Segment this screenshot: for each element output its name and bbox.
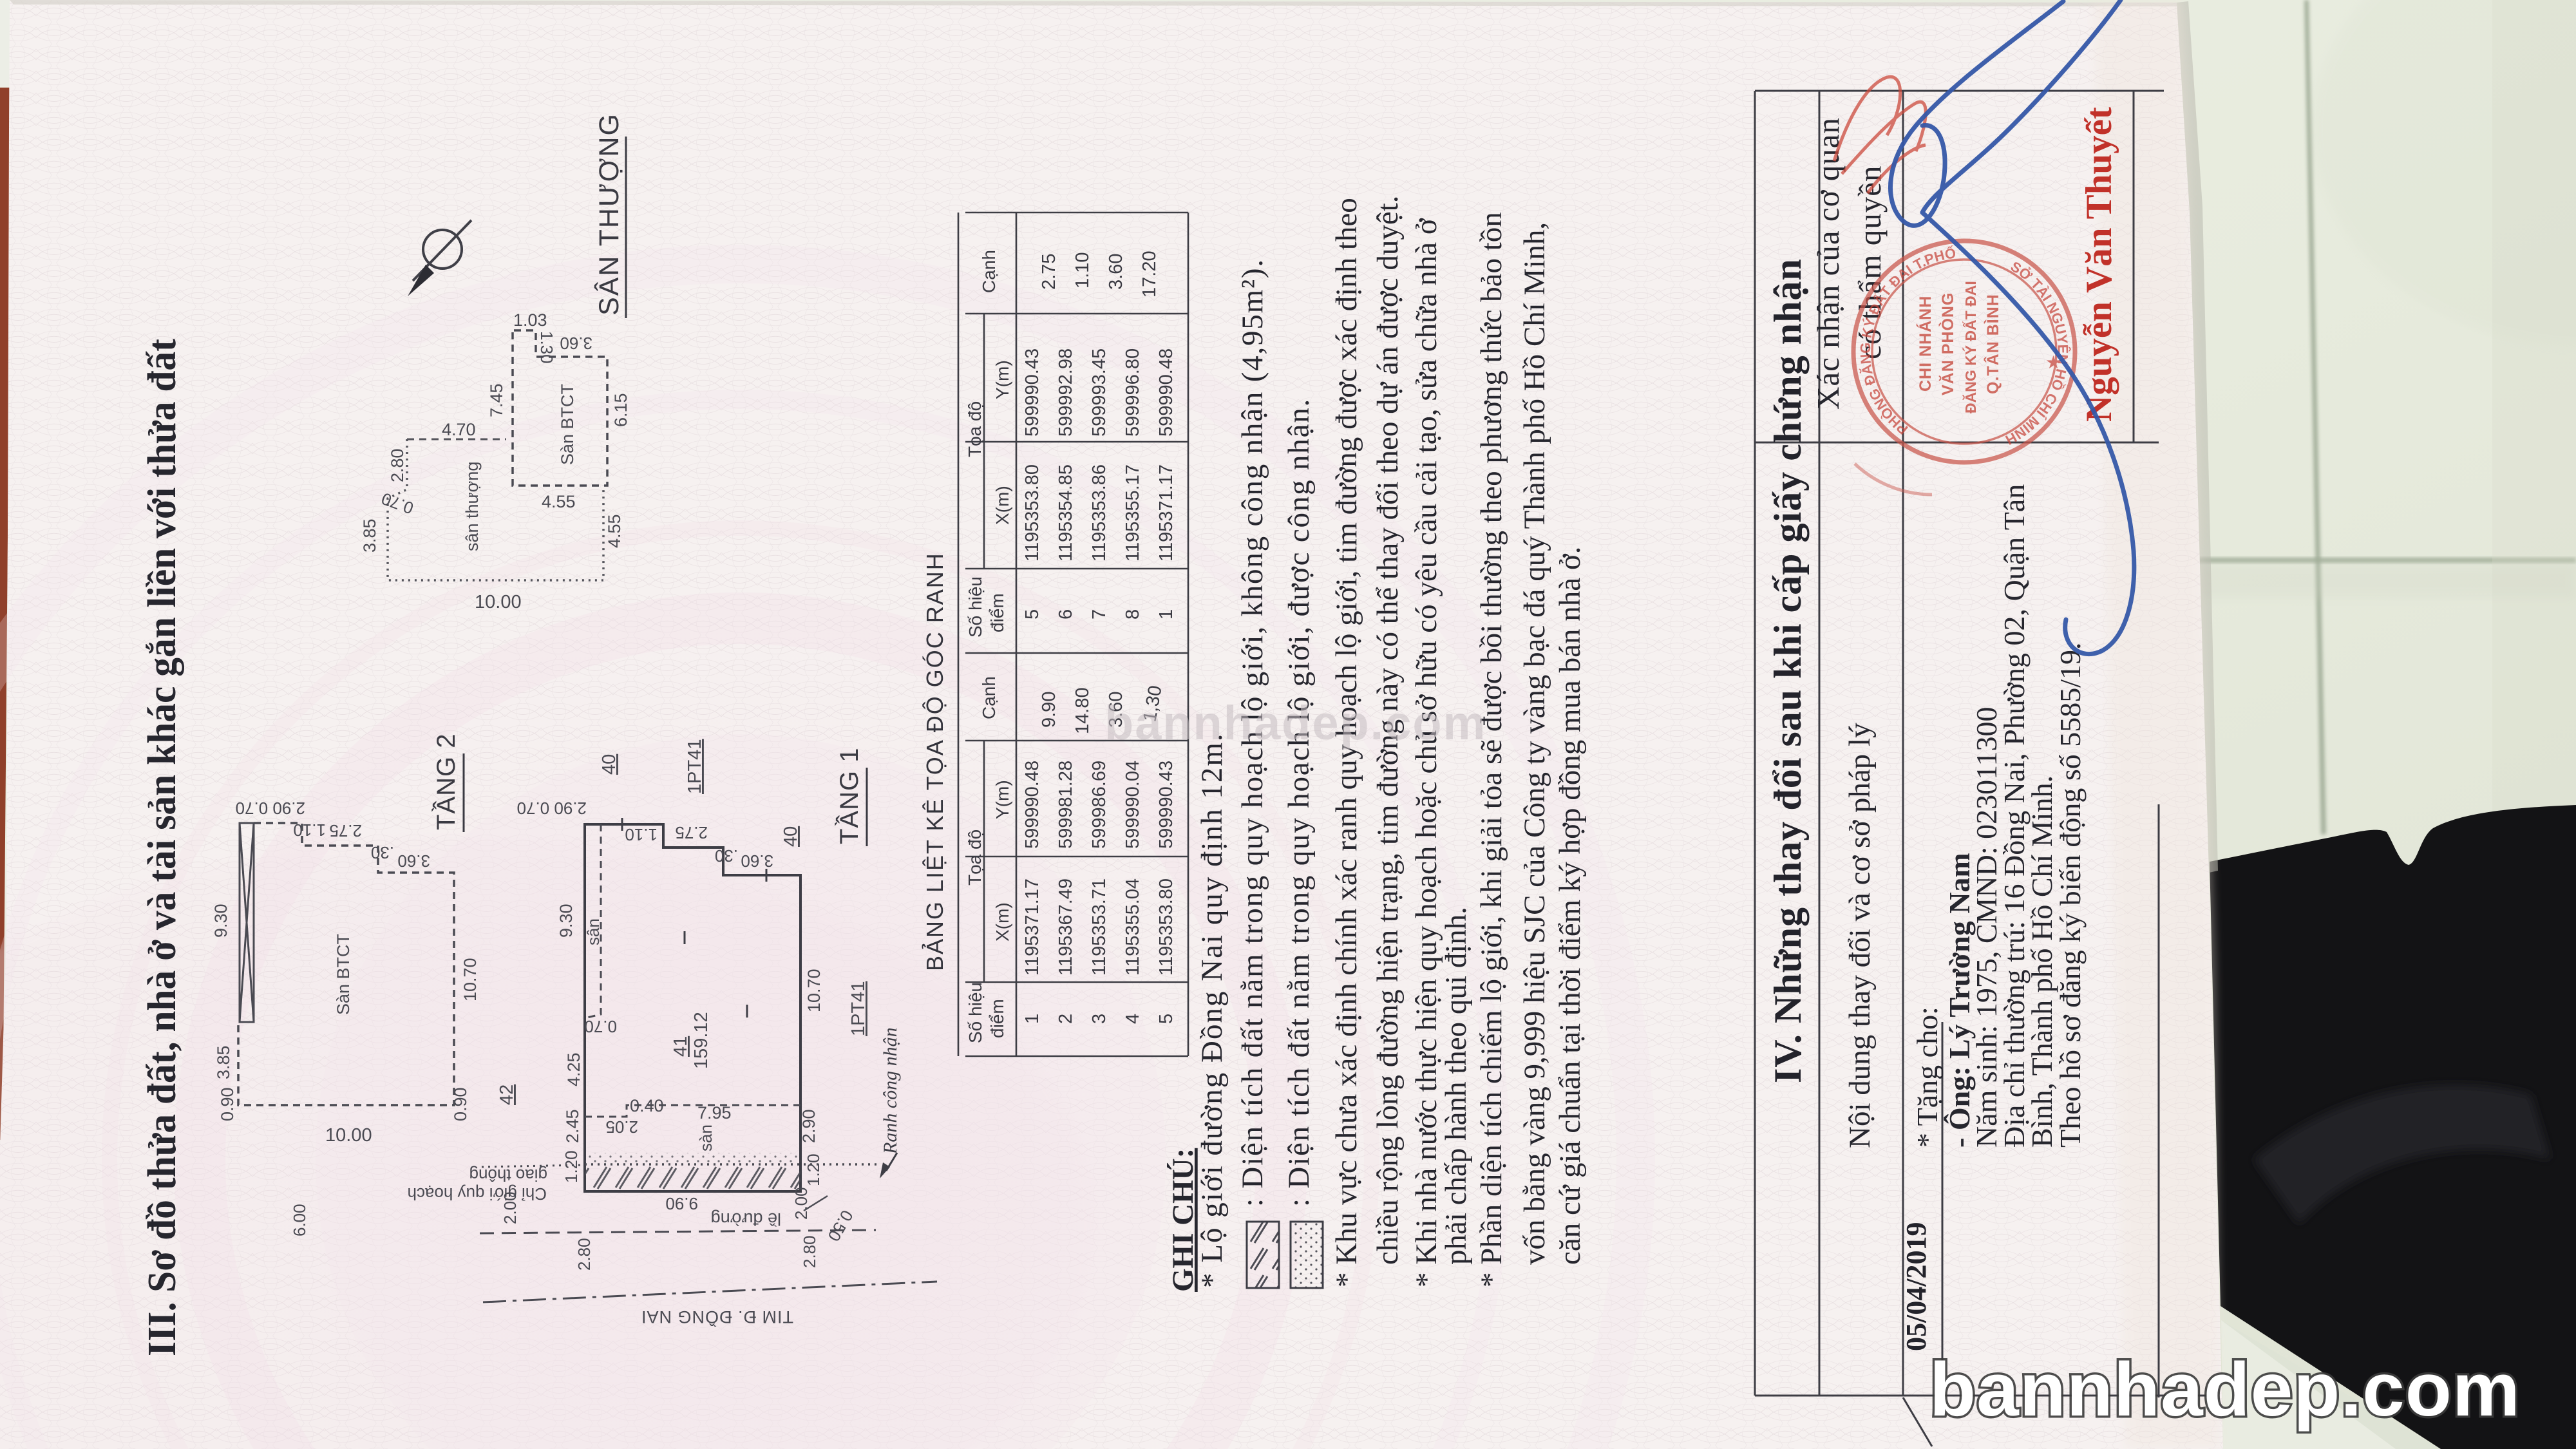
svg-text:599990.43: 599990.43: [1022, 348, 1043, 437]
svg-text:IV. Những thay đổi sau khi cấp: IV. Những thay đổi sau khi cấp giấy chứn…: [1766, 258, 1809, 1083]
svg-text:BẢNG LIỆT KÊ TỌA ĐỘ GÓC RANH: BẢNG LIỆT KÊ TỌA ĐỘ GÓC RANH: [922, 552, 948, 971]
svg-text:4: 4: [1122, 1014, 1143, 1024]
svg-text:bannhadep.com: bannhadep.com: [1929, 1347, 2521, 1432]
svg-text:0.40: 0.40: [630, 1096, 664, 1115]
svg-text:* Lộ giới đường Đồng Nai quy đ: * Lộ giới đường Đồng Nai quy định 12m.: [1195, 732, 1229, 1288]
svg-text:Số hiệu: Số hiệu: [965, 576, 985, 638]
svg-text:599986.69: 599986.69: [1089, 761, 1110, 849]
svg-text:sân: sân: [583, 918, 603, 945]
svg-text:Theo hồ sơ đăng ký biến động s: Theo hồ sơ đăng ký biến động số 5585/19.: [2054, 642, 2087, 1148]
svg-text:Y(m): Y(m): [992, 360, 1012, 399]
svg-text:159.12: 159.12: [691, 1012, 712, 1069]
svg-text:TẦNG 2: TẦNG 2: [431, 734, 460, 830]
svg-text:41: 41: [670, 1036, 691, 1057]
svg-text:2.75: 2.75: [329, 821, 362, 840]
svg-text:9.30: 9.30: [211, 904, 231, 938]
svg-text:Cạnh: Cạnh: [979, 676, 999, 719]
svg-text:8: 8: [1122, 609, 1143, 620]
svg-text:17.20: 17.20: [1139, 251, 1160, 298]
svg-text:6.00: 6.00: [290, 1204, 309, 1236]
svg-text:* Phần diện tích chiếm lộ giới: * Phần diện tích chiếm lộ giới, khi giải…: [1475, 212, 1508, 1287]
svg-text:.30: .30: [715, 846, 738, 866]
svg-text:10.70: 10.70: [804, 969, 824, 1012]
svg-text:Ranh công nhận: Ranh công nhận: [880, 1027, 901, 1155]
svg-text:3.60: 3.60: [397, 851, 430, 871]
svg-text:giao thông: giao thông: [469, 1166, 547, 1185]
svg-text:Xác nhận của cơ quan: Xác nhận của cơ quan: [1810, 117, 1846, 410]
svg-text:0.70: 0.70: [584, 1017, 617, 1036]
svg-text:lề đường: lề đường: [711, 1209, 781, 1229]
svg-text:9.90: 9.90: [665, 1194, 698, 1213]
svg-text:Tọa độ: Tọa độ: [965, 829, 985, 885]
svg-text:Chỉ giới quy hoạch: Chỉ giới quy hoạch: [407, 1184, 547, 1204]
svg-text:Nội dung thay đổi và cơ sở phá: Nội dung thay đổi và cơ sở pháp lý: [1843, 723, 1877, 1148]
svg-text:: Diện tích đất nằm trong quy: : Diện tích đất nằm trong quy hoạch lộ g…: [1282, 398, 1316, 1207]
svg-text:2.80: 2.80: [800, 1235, 819, 1268]
svg-text:Số hiệu: Số hiệu: [965, 982, 985, 1043]
svg-text:14.80: 14.80: [1072, 687, 1093, 734]
svg-text:.30: .30: [371, 843, 394, 862]
svg-text:10.00: 10.00: [475, 592, 522, 612]
svg-text:1PT41: 1PT41: [848, 981, 869, 1036]
svg-text:Cạnh: Cạnh: [979, 250, 999, 293]
svg-text:599990.48: 599990.48: [1156, 348, 1177, 437]
svg-text:Y(m): Y(m): [992, 780, 1012, 819]
svg-text:1.20: 1.20: [562, 1150, 581, 1183]
svg-text:vốn bằng vàng 9,999 hiệu SJC c: vốn bằng vàng 9,999 hiệu SJC của Công ty…: [1518, 222, 1551, 1265]
svg-text:2.45: 2.45: [563, 1109, 582, 1143]
svg-text:9.30: 9.30: [556, 904, 576, 938]
svg-text:Nguyễn Văn Thuyết: Nguyễn Văn Thuyết: [2079, 107, 2119, 422]
svg-text:4.55: 4.55: [605, 514, 624, 548]
svg-text:1195353.86: 1195353.86: [1089, 464, 1110, 562]
svg-text:40: 40: [599, 754, 620, 775]
svg-text:Sàn BTCT: Sàn BTCT: [558, 384, 577, 465]
svg-text:1PT41: 1PT41: [685, 739, 705, 794]
svg-text:0.90: 0.90: [451, 1087, 470, 1121]
svg-text:sàn: sàn: [696, 1124, 715, 1151]
svg-text:3.60: 3.60: [1106, 254, 1126, 290]
svg-text:VĂN PHÒNG: VĂN PHÒNG: [1938, 292, 1957, 395]
svg-text:6.15: 6.15: [611, 393, 630, 427]
svg-text:phải chấp hành theo qui định.: phải chấp hành theo qui định.: [1439, 907, 1473, 1265]
svg-text:2.90: 2.90: [799, 1109, 819, 1143]
svg-text:40: 40: [781, 826, 801, 847]
svg-text:* Khi nhà nước thực hiện quy h: * Khi nhà nước thực hiện quy hoạch hoặc …: [1410, 218, 1443, 1287]
svg-text:599996.80: 599996.80: [1122, 348, 1143, 437]
svg-text:1195353.80: 1195353.80: [1022, 464, 1043, 562]
svg-text:7.95: 7.95: [697, 1103, 732, 1122]
svg-text:599981.28: 599981.28: [1056, 761, 1076, 849]
svg-text:Tọa độ: Tọa độ: [965, 401, 985, 457]
svg-text:1.10: 1.10: [293, 820, 326, 840]
svg-text:sân thượng: sân thượng: [462, 462, 482, 551]
svg-text:căn cứ giá chuẩn tại thời điểm: căn cứ giá chuẩn tại thời điểm ký hợp đồ…: [1553, 547, 1587, 1265]
svg-text:1195354.85: 1195354.85: [1056, 464, 1076, 562]
svg-text:4.25: 4.25: [564, 1052, 583, 1086]
svg-text:Q.TÂN BÌNH: Q.TÂN BÌNH: [1983, 294, 2002, 394]
svg-text:1: 1: [1022, 1014, 1043, 1024]
svg-text:2.00: 2.00: [791, 1187, 811, 1220]
svg-text:X(m): X(m): [992, 486, 1012, 525]
svg-text:599993.45: 599993.45: [1089, 348, 1110, 437]
svg-text:2.90 0.70: 2.90 0.70: [517, 799, 587, 818]
svg-text:1195371.17: 1195371.17: [1156, 464, 1177, 562]
svg-text:điểm: điểm: [987, 593, 1007, 632]
svg-text:2: 2: [1056, 1014, 1076, 1024]
svg-text:3.60: 3.60: [741, 851, 773, 871]
svg-text:1.10: 1.10: [625, 825, 658, 844]
svg-text:TẦNG 1: TẦNG 1: [834, 748, 864, 844]
svg-text:599992.98: 599992.98: [1056, 348, 1076, 437]
svg-text:2.90 0.70: 2.90 0.70: [236, 799, 305, 818]
svg-text:4.55: 4.55: [542, 492, 576, 511]
svg-text:05/04/2019: 05/04/2019: [1900, 1222, 1932, 1351]
svg-text:điểm: điểm: [987, 999, 1007, 1038]
svg-text:6: 6: [1056, 609, 1076, 620]
svg-text:0.90: 0.90: [218, 1087, 237, 1121]
svg-text:1.10: 1.10: [1072, 252, 1093, 289]
svg-text:2.75: 2.75: [675, 823, 708, 842]
svg-text:10.70: 10.70: [460, 958, 480, 1001]
svg-text:SÂN THƯỢNG: SÂN THƯỢNG: [594, 113, 625, 316]
svg-text:7.45: 7.45: [487, 383, 506, 417]
svg-text:1.20: 1.20: [804, 1153, 823, 1186]
svg-text:42: 42: [497, 1084, 517, 1105]
svg-text:599990.04: 599990.04: [1122, 761, 1143, 849]
svg-text:1.03: 1.03: [513, 310, 547, 330]
svg-text:3.85: 3.85: [214, 1045, 233, 1079]
svg-text:3.85: 3.85: [360, 518, 379, 553]
svg-text:2.75: 2.75: [1039, 254, 1059, 290]
svg-text:599990.48: 599990.48: [1022, 761, 1043, 849]
svg-text:3: 3: [1089, 1014, 1110, 1024]
svg-text:ĐĂNG KÝ ĐẤT ĐAI: ĐĂNG KÝ ĐẤT ĐAI: [1962, 281, 1979, 413]
svg-text:1195371.17: 1195371.17: [1022, 878, 1043, 976]
svg-text:7: 7: [1089, 609, 1110, 620]
svg-text:2.80: 2.80: [388, 448, 407, 482]
svg-text:1195353.80: 1195353.80: [1156, 878, 1177, 976]
svg-text:2.80: 2.80: [574, 1238, 594, 1271]
svg-text:1: 1: [1156, 609, 1177, 620]
svg-text:III. Sơ đồ thửa đất, nhà ở và: III. Sơ đồ thửa đất, nhà ở và tài sản kh…: [140, 339, 184, 1356]
svg-text:9.90: 9.90: [1039, 692, 1059, 728]
svg-text:TIM Đ. ĐỒNG NAI: TIM Đ. ĐỒNG NAI: [641, 1307, 793, 1327]
svg-text:* Tặng cho:: * Tặng cho:: [1911, 1007, 1944, 1148]
svg-text:1.30: 1.30: [537, 331, 556, 364]
svg-text:2.05: 2.05: [605, 1117, 638, 1137]
svg-text:599990.43: 599990.43: [1156, 761, 1177, 849]
svg-text:5: 5: [1022, 609, 1043, 620]
svg-text:1195355.17: 1195355.17: [1122, 464, 1143, 562]
svg-text:bannhadep.com: bannhadep.com: [1104, 696, 1486, 750]
svg-text:1195355.04: 1195355.04: [1122, 878, 1143, 976]
svg-text:4.70: 4.70: [442, 420, 476, 439]
svg-text:5: 5: [1156, 1014, 1177, 1024]
svg-text:3.60: 3.60: [560, 334, 592, 353]
svg-text:1195353.71: 1195353.71: [1089, 878, 1110, 976]
svg-text:1195367.49: 1195367.49: [1056, 878, 1076, 976]
svg-text:10.00: 10.00: [325, 1125, 372, 1146]
svg-text:CHI NHÁNH: CHI NHÁNH: [1916, 296, 1935, 392]
svg-text:Sàn BTCT: Sàn BTCT: [334, 934, 353, 1015]
svg-text:X(m): X(m): [992, 902, 1012, 942]
